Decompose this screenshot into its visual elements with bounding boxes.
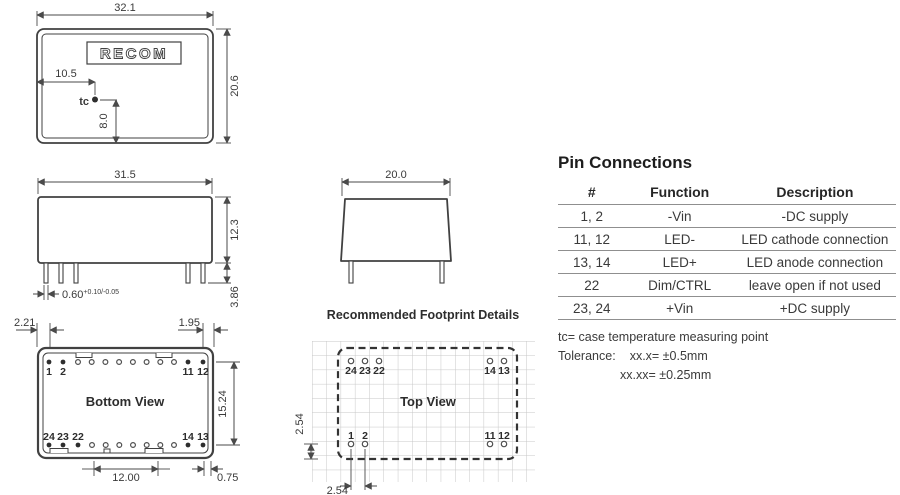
pad-24 bbox=[348, 358, 353, 363]
dim-pitch-horizontal: 2.54 bbox=[327, 485, 348, 495]
cell-pin-numbers: 22 bbox=[558, 274, 626, 297]
cell-pin-numbers: 23, 24 bbox=[558, 297, 626, 320]
pad-label-24: 24 bbox=[345, 365, 357, 377]
pad-label-1: 1 bbox=[348, 430, 354, 442]
note-tolerance-line1: Tolerance:xx.x= ±0.5mm bbox=[558, 347, 896, 366]
pad-1 bbox=[348, 441, 353, 446]
pad-14 bbox=[487, 358, 492, 363]
pin-dot-11 bbox=[186, 360, 191, 365]
dim-top-view-height: 20.6 bbox=[229, 75, 241, 96]
recom-logo: RECOM bbox=[100, 46, 168, 63]
dim-pin-width-group: 0.60+0.10/-0.05 bbox=[62, 289, 119, 301]
pad-label-13: 13 bbox=[498, 365, 510, 377]
tolerance-value-2: xx.xx= ±0.25mm bbox=[620, 366, 896, 385]
top-view: RECOM 32.1 20.6 10.5 tc 8.0 bbox=[37, 2, 241, 143]
side-view-pin bbox=[201, 263, 205, 283]
front-view: 20.0 bbox=[341, 169, 451, 283]
pad-label-22: 22 bbox=[373, 365, 385, 377]
pin-label-2: 2 bbox=[60, 366, 66, 378]
pin-dot-unused bbox=[172, 443, 177, 448]
case-notch bbox=[50, 449, 68, 454]
pin-label-14: 14 bbox=[182, 431, 194, 443]
pin-connections-title: Pin Connections bbox=[558, 153, 896, 173]
side-view-case-outline bbox=[38, 197, 212, 263]
dim-front-view-width: 20.0 bbox=[385, 169, 406, 181]
pin-dot-unused bbox=[144, 443, 149, 448]
side-view: 31.5 12.3 3.86 0.60+0.10/-0.05 bbox=[33, 169, 241, 308]
cell-description: -DC supply bbox=[734, 205, 896, 228]
cell-function: LED- bbox=[626, 228, 734, 251]
pad-13 bbox=[501, 358, 506, 363]
bottom-view: 2.21 1.95 bbox=[14, 317, 240, 484]
pad-label-11: 11 bbox=[484, 430, 495, 442]
cell-pin-numbers: 13, 14 bbox=[558, 251, 626, 274]
pin-dot-13 bbox=[201, 443, 206, 448]
footprint-heading: Recommended Footprint Details bbox=[327, 308, 519, 322]
dim-pin-length: 3.86 bbox=[229, 286, 241, 307]
datasheet-mechanical-drawing: RECOM 32.1 20.6 10.5 tc 8.0 bbox=[0, 0, 900, 495]
front-view-pin bbox=[349, 261, 353, 283]
dim-pitch-vertical: 2.54 bbox=[294, 413, 306, 434]
case-notch bbox=[145, 449, 163, 454]
pad-23 bbox=[362, 358, 367, 363]
pin-dot-unused bbox=[90, 443, 95, 448]
pin-label-23: 23 bbox=[57, 431, 69, 443]
pin-label-12: 12 bbox=[197, 366, 209, 378]
table-row: 22 Dim/CTRL leave open if not used bbox=[558, 274, 896, 297]
front-view-pin bbox=[440, 261, 444, 283]
tolerance-label: Tolerance: bbox=[558, 349, 616, 363]
side-view-pin bbox=[59, 263, 63, 283]
dim-edge-offset: 0.75 bbox=[217, 472, 238, 484]
pin-dot-unused bbox=[131, 443, 136, 448]
dim-pin-row-span: 15.24 bbox=[217, 390, 229, 418]
dim-right-pin-offset: 1.95 bbox=[179, 317, 200, 329]
pin-dot-1 bbox=[47, 360, 52, 365]
dim-tc-x: 10.5 bbox=[55, 68, 76, 80]
pad-label-12: 12 bbox=[498, 430, 510, 442]
table-row: 23, 24 +Vin +DC supply bbox=[558, 297, 896, 320]
cell-function: -Vin bbox=[626, 205, 734, 228]
tc-point bbox=[92, 97, 98, 103]
pin-dot-24 bbox=[47, 443, 52, 448]
pin-connections-table: # Function Description 1, 2 -Vin -DC sup… bbox=[558, 182, 896, 320]
case-notch bbox=[156, 353, 172, 358]
dim-pin-span: 12.00 bbox=[112, 472, 140, 484]
pad-22 bbox=[376, 358, 381, 363]
bottom-view-title: Bottom View bbox=[86, 394, 165, 409]
cell-function: Dim/CTRL bbox=[626, 274, 734, 297]
dim-side-view-height: 12.3 bbox=[229, 219, 241, 240]
pin-label-1: 1 bbox=[46, 366, 52, 378]
cell-pin-numbers: 1, 2 bbox=[558, 205, 626, 228]
tc-label: tc bbox=[79, 96, 89, 108]
pin-dot-12 bbox=[201, 360, 206, 365]
pin-dot-14 bbox=[186, 443, 191, 448]
pin-dot-unused bbox=[131, 360, 136, 365]
pin-label-11: 11 bbox=[182, 366, 193, 378]
pin-dot-unused bbox=[89, 360, 94, 365]
pin-dot-unused bbox=[103, 443, 108, 448]
side-view-pin bbox=[186, 263, 190, 283]
pin-dot-unused bbox=[172, 360, 177, 365]
pad-11 bbox=[487, 441, 492, 446]
pin-dot-unused bbox=[144, 360, 149, 365]
dim-side-view-width: 31.5 bbox=[114, 169, 135, 181]
table-row: 13, 14 LED+ LED anode connection bbox=[558, 251, 896, 274]
cell-function: LED+ bbox=[626, 251, 734, 274]
pin-label-22: 22 bbox=[72, 431, 84, 443]
header-description: Description bbox=[734, 182, 896, 205]
case-notch bbox=[76, 353, 92, 358]
pin-connections-panel: Pin Connections # Function Description 1… bbox=[558, 153, 896, 384]
pin-dot-unused bbox=[158, 360, 163, 365]
pad-12 bbox=[501, 441, 506, 446]
side-view-pin bbox=[74, 263, 78, 283]
cell-pin-numbers: 11, 12 bbox=[558, 228, 626, 251]
cell-description: +DC supply bbox=[734, 297, 896, 320]
table-row: 1, 2 -Vin -DC supply bbox=[558, 205, 896, 228]
pin-dot-22 bbox=[76, 443, 81, 448]
pad-label-14: 14 bbox=[484, 365, 496, 377]
cell-description: LED cathode connection bbox=[734, 228, 896, 251]
pad-2 bbox=[362, 441, 367, 446]
pin-dot-unused bbox=[76, 360, 81, 365]
pin-dot-23 bbox=[61, 443, 66, 448]
tolerance-value-1: xx.x= ±0.5mm bbox=[630, 349, 708, 363]
cell-function: +Vin bbox=[626, 297, 734, 320]
pin-dot-unused bbox=[117, 443, 122, 448]
pad-label-2: 2 bbox=[362, 430, 368, 442]
dim-left-pin-offset: 2.21 bbox=[14, 317, 35, 329]
dim-tc-y: 8.0 bbox=[98, 113, 110, 128]
footprint-title: Top View bbox=[400, 394, 457, 409]
drawing-canvas: RECOM 32.1 20.6 10.5 tc 8.0 bbox=[0, 0, 548, 495]
footprint-details: Recommended Footprint Details 24 23 22 1… bbox=[294, 308, 535, 495]
front-view-case-outline bbox=[341, 199, 451, 261]
table-row: 11, 12 LED- LED cathode connection bbox=[558, 228, 896, 251]
note-tc: tc= case temperature measuring point bbox=[558, 328, 896, 347]
cell-description: LED anode connection bbox=[734, 251, 896, 274]
dim-top-view-width: 32.1 bbox=[114, 2, 135, 14]
table-header-row: # Function Description bbox=[558, 182, 896, 205]
pin-dot-2 bbox=[61, 360, 66, 365]
header-number: # bbox=[558, 182, 626, 205]
pin-dot-unused bbox=[117, 360, 122, 365]
cell-description: leave open if not used bbox=[734, 274, 896, 297]
side-view-pin bbox=[44, 263, 48, 283]
footnotes: tc= case temperature measuring point Tol… bbox=[558, 328, 896, 384]
pin-label-13: 13 bbox=[197, 431, 209, 443]
dim-pin-width: 0.60 bbox=[62, 289, 83, 301]
pin-label-24: 24 bbox=[43, 431, 55, 443]
pad-label-23: 23 bbox=[359, 365, 371, 377]
case-key-bump bbox=[104, 449, 110, 453]
dim-pin-width-tolerance: +0.10/-0.05 bbox=[83, 289, 119, 296]
pin-dot-unused bbox=[158, 443, 163, 448]
header-function: Function bbox=[626, 182, 734, 205]
pin-dot-unused bbox=[103, 360, 108, 365]
